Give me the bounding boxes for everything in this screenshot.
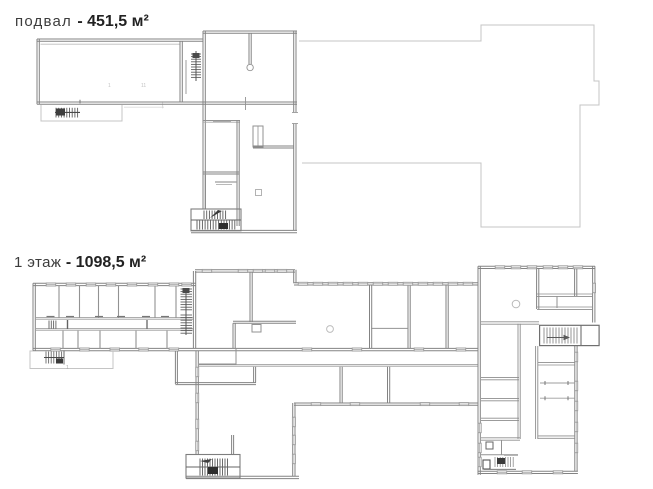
svg-text:11: 11 [141, 83, 146, 89]
svg-text:1: 1 [66, 365, 69, 371]
svg-text:1: 1 [108, 83, 111, 89]
